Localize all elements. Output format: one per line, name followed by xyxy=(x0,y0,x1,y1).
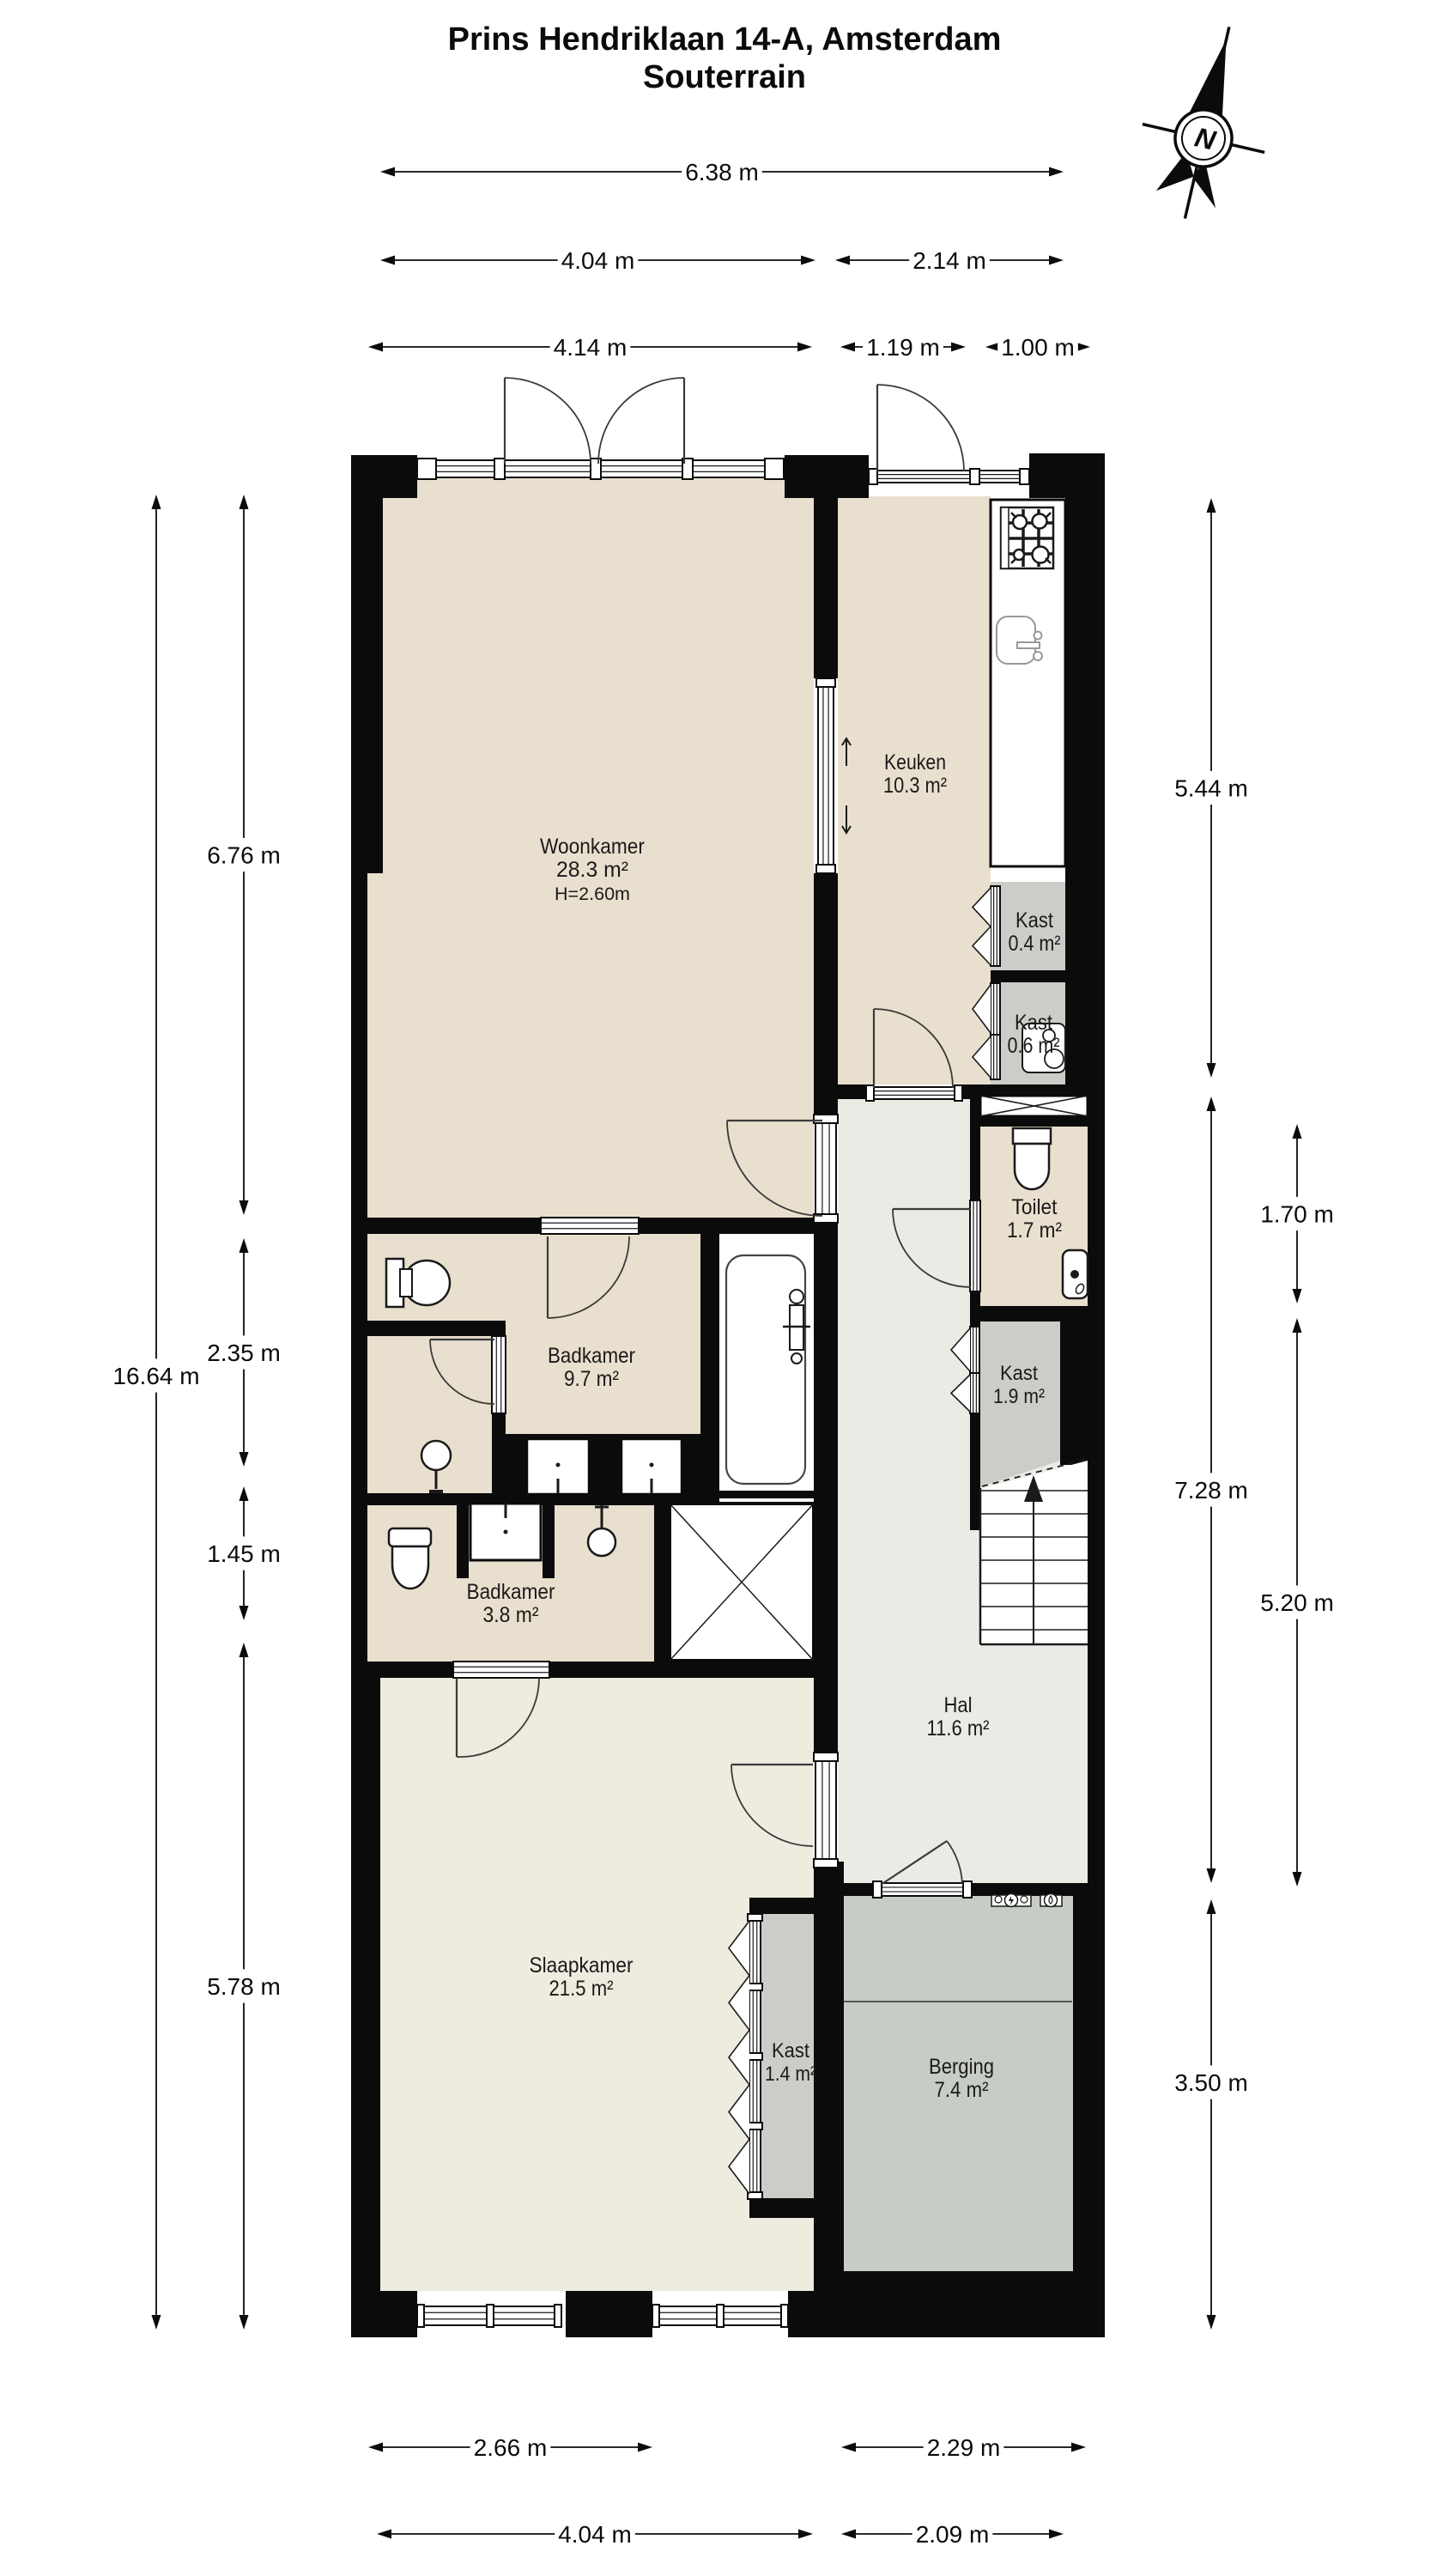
svg-text:Slaapkamer: Slaapkamer xyxy=(530,1953,634,1978)
svg-text:Hal: Hal xyxy=(944,1693,973,1717)
svg-text:1.45 m: 1.45 m xyxy=(207,1540,281,1567)
svg-text:Badkamer: Badkamer xyxy=(548,1344,635,1368)
svg-text:1.19 m: 1.19 m xyxy=(866,334,940,361)
svg-text:Keuken: Keuken xyxy=(884,750,946,775)
svg-text:2.29 m: 2.29 m xyxy=(927,2434,1001,2461)
svg-text:Kast: Kast xyxy=(772,2039,809,2063)
svg-text:7.4 m²: 7.4 m² xyxy=(935,2078,989,2102)
svg-text:21.5 m²: 21.5 m² xyxy=(549,1977,614,2001)
svg-text:10.3 m²: 10.3 m² xyxy=(883,774,947,798)
svg-text:4.04 m: 4.04 m xyxy=(558,2521,632,2548)
svg-text:1.4 m²: 1.4 m² xyxy=(765,2063,816,2086)
svg-text:1.70 m: 1.70 m xyxy=(1260,1201,1334,1228)
svg-text:Kast: Kast xyxy=(1000,1362,1038,1385)
svg-text:4.14 m: 4.14 m xyxy=(554,334,627,361)
svg-text:6.38 m: 6.38 m xyxy=(685,159,759,185)
svg-text:11.6 m²: 11.6 m² xyxy=(927,1716,990,1741)
svg-text:5.20 m: 5.20 m xyxy=(1260,1589,1334,1616)
svg-text:5.78 m: 5.78 m xyxy=(207,1973,281,2000)
svg-text:Woonkamer: Woonkamer xyxy=(540,835,645,859)
svg-text:1.00 m: 1.00 m xyxy=(1001,334,1075,361)
svg-text:9.7 m²: 9.7 m² xyxy=(564,1367,619,1391)
svg-text:2.35 m: 2.35 m xyxy=(207,1340,281,1366)
svg-text:0.4 m²: 0.4 m² xyxy=(1009,932,1061,956)
svg-text:Souterrain: Souterrain xyxy=(643,59,806,95)
svg-text:H=2.60m: H=2.60m xyxy=(555,884,630,904)
svg-text:16.64 m: 16.64 m xyxy=(112,1363,199,1389)
svg-text:2.09 m: 2.09 m xyxy=(916,2521,990,2548)
svg-text:0.6 m²: 0.6 m² xyxy=(1008,1034,1060,1058)
svg-text:Berging: Berging xyxy=(929,2055,994,2079)
svg-text:5.44 m: 5.44 m xyxy=(1174,775,1248,802)
svg-text:6.76 m: 6.76 m xyxy=(207,842,281,869)
svg-text:2.66 m: 2.66 m xyxy=(474,2434,548,2461)
svg-text:Prins Hendriklaan 14-A, Amster: Prins Hendriklaan 14-A, Amsterdam xyxy=(448,21,1002,58)
svg-text:7.28 m: 7.28 m xyxy=(1174,1477,1248,1504)
svg-text:Kast: Kast xyxy=(1016,908,1053,933)
svg-text:3.8 m²: 3.8 m² xyxy=(483,1603,539,1627)
svg-text:Badkamer: Badkamer xyxy=(467,1580,555,1604)
svg-text:1.7 m²: 1.7 m² xyxy=(1007,1218,1062,1242)
svg-text:4.04 m: 4.04 m xyxy=(561,247,635,274)
svg-text:2.14 m: 2.14 m xyxy=(912,247,986,274)
svg-text:3.50 m: 3.50 m xyxy=(1174,2069,1248,2096)
svg-text:Kast: Kast xyxy=(1015,1011,1052,1035)
svg-text:1.9 m²: 1.9 m² xyxy=(993,1385,1045,1408)
svg-text:Toilet: Toilet xyxy=(1012,1195,1058,1219)
svg-text:28.3 m²: 28.3 m² xyxy=(556,858,628,882)
